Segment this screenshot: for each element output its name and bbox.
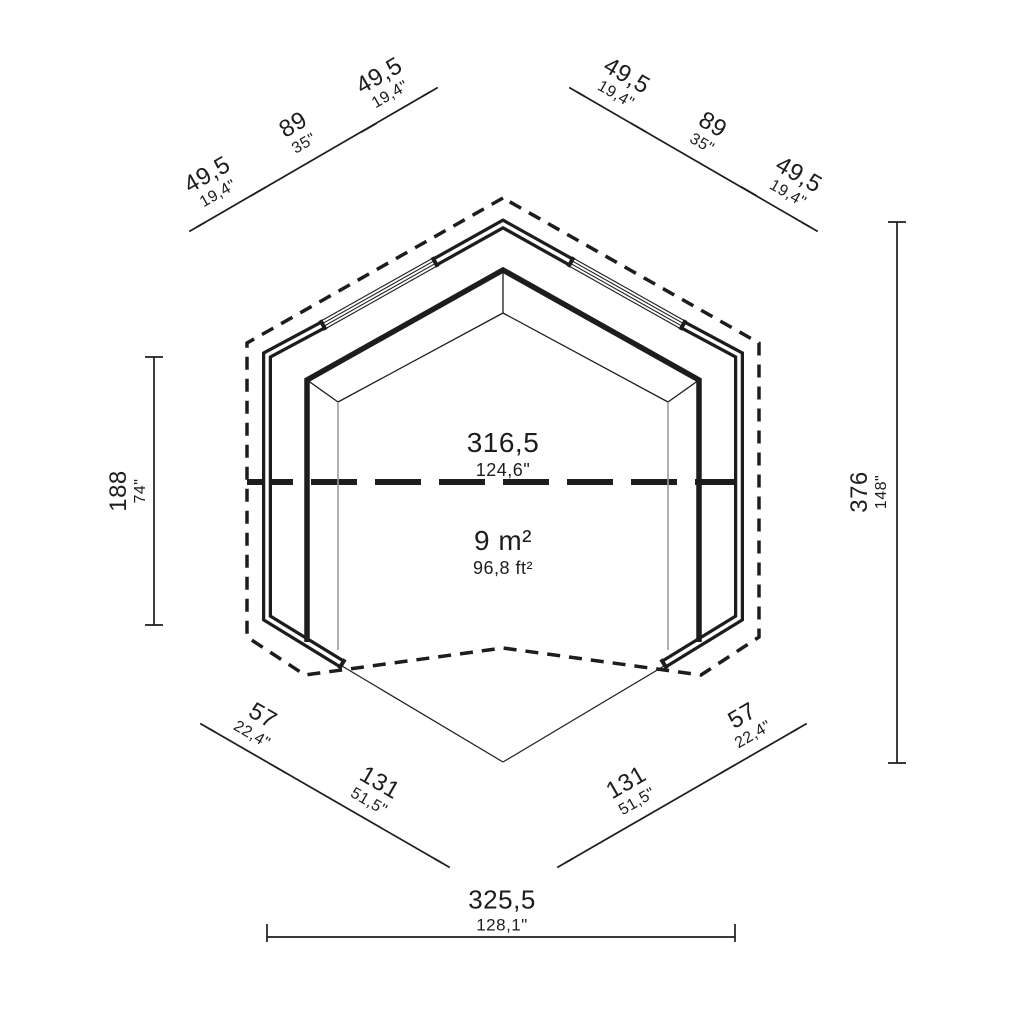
dim-label-right: 376 148" xyxy=(848,471,890,513)
dim-line-right xyxy=(888,222,906,763)
dim-value-inches: 148" xyxy=(874,471,890,513)
area-imperial: 96,8 ft² xyxy=(473,559,533,577)
dim-line-bottom-left xyxy=(200,724,450,868)
interior-width-label: 316,5 124,6" xyxy=(467,429,540,479)
dimension-lines xyxy=(145,88,906,943)
porch-edge-lines xyxy=(342,666,664,762)
floor-area-label: 9 m² 96,8 ft² xyxy=(473,527,533,577)
dim-label-bottom-width: 325,5 128,1" xyxy=(468,887,536,934)
dim-label-left: 188 74" xyxy=(107,470,149,512)
dim-value: 316,5 xyxy=(467,429,540,457)
dim-value: 325,5 xyxy=(468,887,536,913)
dim-value-inches: 74" xyxy=(133,470,149,512)
floor-plan-drawing xyxy=(0,0,1024,1028)
dim-value: 188 xyxy=(107,470,131,512)
area-metric: 9 m² xyxy=(473,527,533,555)
dim-value-inches: 124,6" xyxy=(467,461,540,479)
dim-value: 376 xyxy=(848,471,872,513)
dim-value-inches: 128,1" xyxy=(468,917,536,934)
dim-line-bottom-right xyxy=(557,724,807,868)
floor-plan-canvas: 49,5 19,4" 89 35" 49,5 19,4" 49,5 19,4" … xyxy=(0,0,1024,1028)
